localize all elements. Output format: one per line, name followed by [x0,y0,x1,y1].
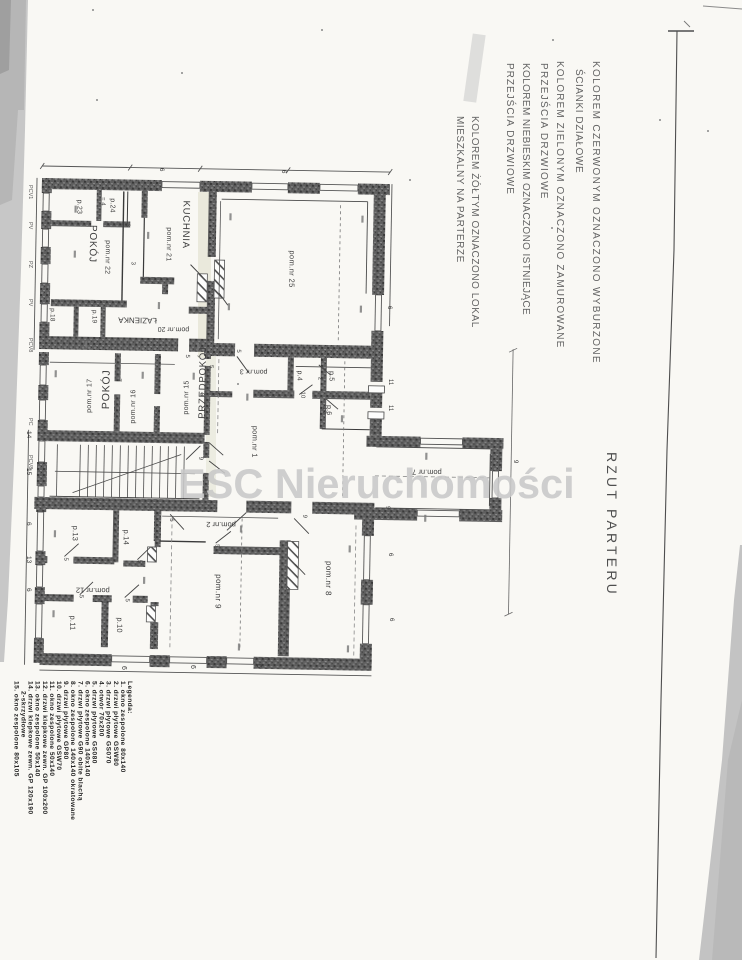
svg-text:pom.nr 16: pom.nr 16 [130,389,138,423]
svg-text:KUCHNIA: KUCHNIA [180,200,192,249]
svg-text:10: 10 [299,392,305,399]
svg-text:PC: PC [27,418,33,426]
svg-text:PCV1: PCV1 [27,185,33,199]
svg-text:pom.nr 1: pom.nr 1 [250,426,260,458]
svg-text:ŁAZIENKA: ŁAZIENKA [117,315,156,325]
svg-text:p.5: p.5 [328,371,335,381]
svg-text:ŚCIANKI DZIAŁOWE: ŚCIANKI DZIAŁOWE [573,69,586,173]
svg-text:KOLOREM ZIELONYM OZNACZONO ZAM: KOLOREM ZIELONYM OZNACZONO ZAMUROWANE [554,61,565,348]
svg-text:8. okno zespolone 140x140 okra: 8. okno zespolone 140x140 okratowane [69,681,76,820]
svg-text:KOLOREM CZERWONYM OZNACZONO WY: KOLOREM CZERWONYM OZNACZONO WYBURZONE [590,61,601,364]
svg-text:5. drzwi płytowe GS080: 5. drzwi płytowe GS080 [91,681,98,764]
svg-text:11: 11 [387,379,393,386]
svg-text:pom.nr 2: pom.nr 2 [206,520,236,530]
svg-text:6: 6 [189,665,196,669]
svg-text:p.18: p.18 [49,308,56,322]
svg-text:10. drzwi płytowe GSW70: 10. drzwi płytowe GSW70 [55,681,62,771]
svg-text:PZ: PZ [27,261,33,269]
svg-text:ESC Nieruchomości: ESC Nieruchomości [178,460,575,507]
svg-text:p.24: p.24 [108,198,115,213]
svg-text:13: 13 [25,556,32,564]
svg-text:15: 15 [25,468,32,476]
svg-text:Legenda:: Legenda: [126,681,133,714]
svg-text:7. drzwi płytowe G90 obite bla: 7. drzwi płytowe G90 obite blachą [76,681,83,801]
svg-text:pom.nr 8: pom.nr 8 [324,561,334,596]
svg-text:RZUT PARTERU: RZUT PARTERU [604,452,620,597]
svg-text:pom.nr 22: pom.nr 22 [103,240,111,274]
svg-text:14. drzwi klepkowe zewn. GP 12: 14. drzwi klepkowe zewn. GP 120x190 [27,681,34,815]
svg-text:PRZEJŚCIA DRZWIOWE: PRZEJŚCIA DRZWIOWE [538,63,551,200]
svg-text:pom.nr 3: pom.nr 3 [240,367,268,374]
svg-text:PV: PV [27,222,33,230]
svg-text:2-skrzydłowe: 2-skrzydłowe [20,691,27,738]
svg-text:POKÓJ: POKÓJ [99,369,113,409]
svg-text:15. okno zespolone 80x105: 15. okno zespolone 80x105 [12,681,19,777]
svg-text:pom.nr 25: pom.nr 25 [287,250,297,288]
svg-text:p.4: p.4 [296,370,303,380]
svg-text:KOLOREM ŻÓŁTYM OZNACZONO LOKAL: KOLOREM ŻÓŁTYM OZNACZONO LOKAL [469,116,482,328]
svg-text:PV: PV [27,299,33,307]
svg-text:pom.nr 20: pom.nr 20 [158,325,190,333]
svg-text:11: 11 [387,405,393,412]
svg-text:p.13: p.13 [71,526,80,542]
svg-text:1. okno zespolone 80x140: 1. okno zespolone 80x140 [119,681,126,773]
svg-text:p.10: p.10 [115,617,124,633]
svg-text:pom.nr 9: pom.nr 9 [214,574,224,609]
svg-text:KOLOREM NIEBIESKIM OZNACZONO I: KOLOREM NIEBIESKIM OZNACZONO ISTNIEJĄCE [520,63,531,315]
svg-text:6. okno zespolone 140x140: 6. okno zespolone 140x140 [83,681,90,777]
svg-text:p.19: p.19 [91,310,98,324]
svg-text:10: 10 [321,407,327,414]
svg-text:PRZEDPOKÓJ: PRZEDPOKÓJ [197,346,209,419]
svg-text:PCV8: PCV8 [27,338,33,352]
svg-text:POKÓJ: POKÓJ [87,225,101,263]
svg-text:pom.nr 21: pom.nr 21 [165,227,173,261]
svg-text:p.14: p.14 [122,529,131,545]
svg-text:6: 6 [255,664,262,668]
svg-text:PRZEJŚCIA DRZWIOWE: PRZEJŚCIA DRZWIOWE [504,63,517,195]
svg-text:6: 6 [25,588,32,592]
svg-text:MIESZKALNY NA PARTERZE: MIESZKALNY NA PARTERZE [454,116,465,263]
svg-text:= 4: = 4 [100,197,106,206]
svg-text:2. drzwi płytowe GSW80: 2. drzwi płytowe GSW80 [112,681,119,766]
svg-text:6: 6 [120,666,127,670]
svg-text:11. okno zespolone 50x140: 11. okno zespolone 50x140 [48,681,55,777]
svg-text:pom.nr 15: pom.nr 15 [183,380,191,414]
svg-text:14: 14 [25,431,32,439]
svg-text:12. drzwi klepkowe zewn. GP 10: 12. drzwi klepkowe zewn. GP 100x200 [41,681,48,815]
svg-text:pom.nr 17: pom.nr 17 [86,379,94,413]
svg-text:9. drzwi płytowe GP80: 9. drzwi płytowe GP80 [62,681,69,760]
svg-text:6: 6 [25,522,32,526]
svg-text:4. otwór 70x200: 4. otwór 70x200 [98,681,105,737]
svg-text:13. okno zespolone 50x140: 13. okno zespolone 50x140 [34,681,41,777]
svg-text:3. drzwi płytowe GS070: 3. drzwi płytowe GS070 [105,681,112,764]
svg-text:p.11: p.11 [68,616,77,631]
